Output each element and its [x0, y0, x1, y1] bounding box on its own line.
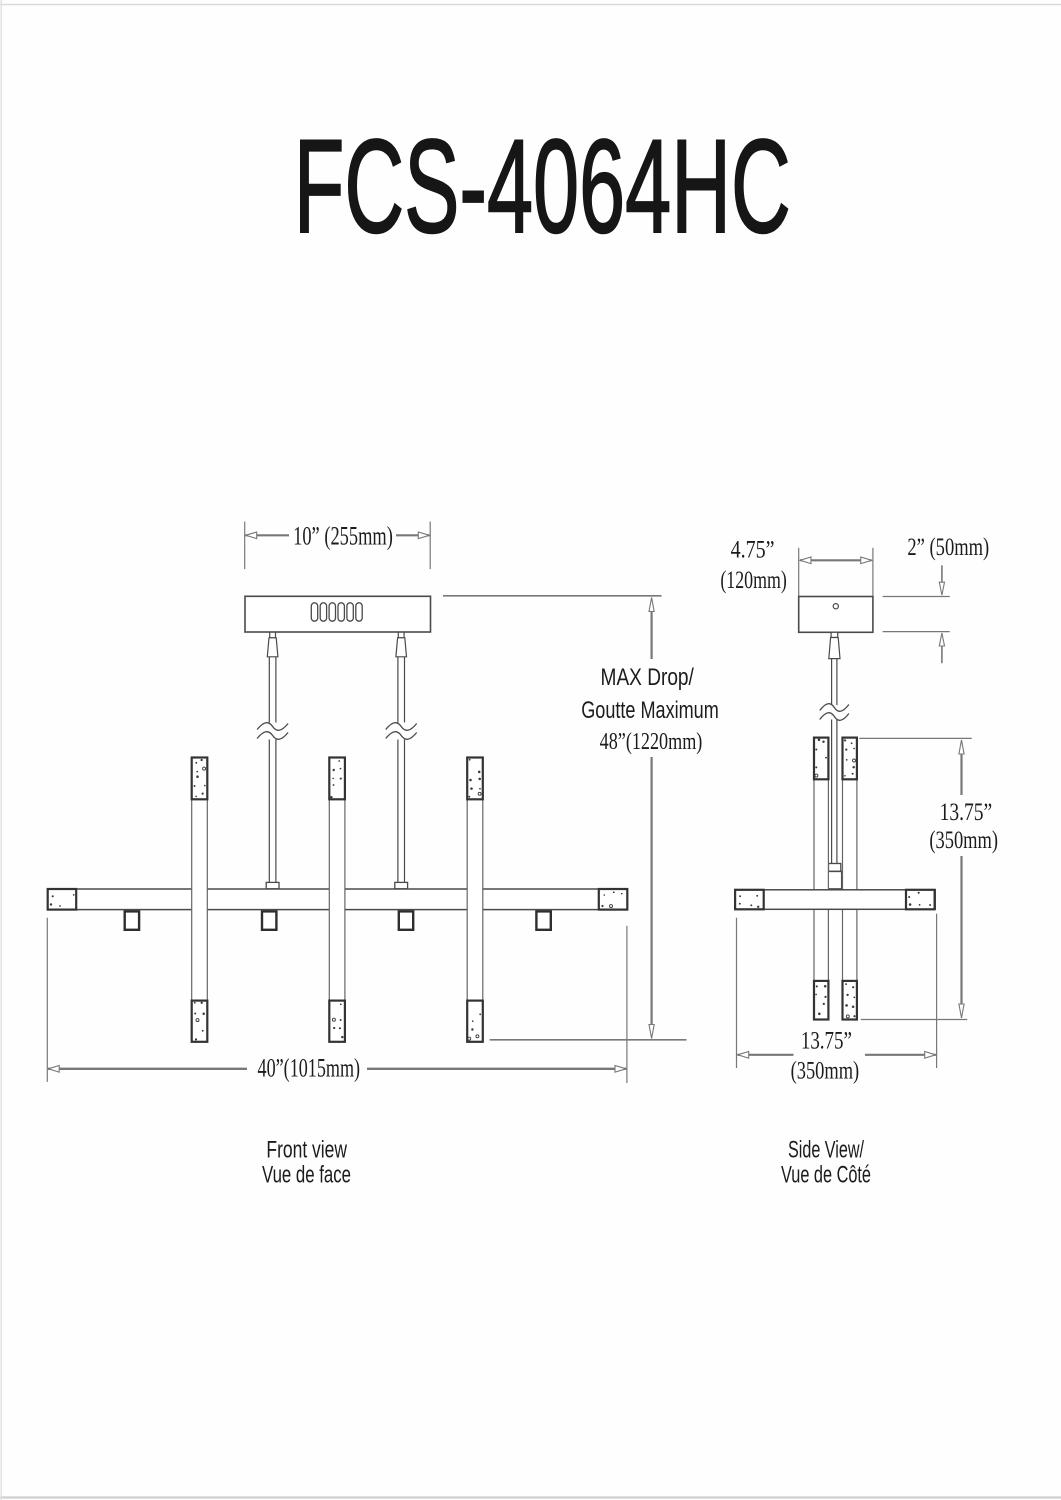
svg-text:(350mm): (350mm): [929, 827, 998, 854]
svg-text:(350mm): (350mm): [791, 1058, 860, 1085]
svg-text:MAX Drop/: MAX Drop/: [601, 665, 695, 691]
svg-text:40”(1015mm): 40”(1015mm): [258, 1054, 361, 1083]
svg-text:10” (255mm): 10” (255mm): [293, 522, 393, 551]
svg-text:48”(1220mm): 48”(1220mm): [600, 729, 703, 755]
svg-text:Front view: Front view: [266, 1138, 347, 1164]
svg-text:(120mm): (120mm): [720, 567, 787, 594]
svg-text:Vue de face: Vue de face: [262, 1163, 351, 1189]
svg-text:Side View/: Side View/: [788, 1138, 864, 1164]
svg-text:Vue de Côté: Vue de Côté: [781, 1163, 871, 1189]
svg-text:FCS-4064HC: FCS-4064HC: [294, 113, 791, 261]
svg-text:4.75”: 4.75”: [731, 537, 775, 564]
svg-text:13.75”: 13.75”: [940, 799, 993, 826]
svg-text:13.75”: 13.75”: [801, 1028, 852, 1055]
svg-text:Goutte Maximum: Goutte Maximum: [581, 698, 719, 724]
svg-text:2” (50mm): 2” (50mm): [907, 534, 989, 561]
